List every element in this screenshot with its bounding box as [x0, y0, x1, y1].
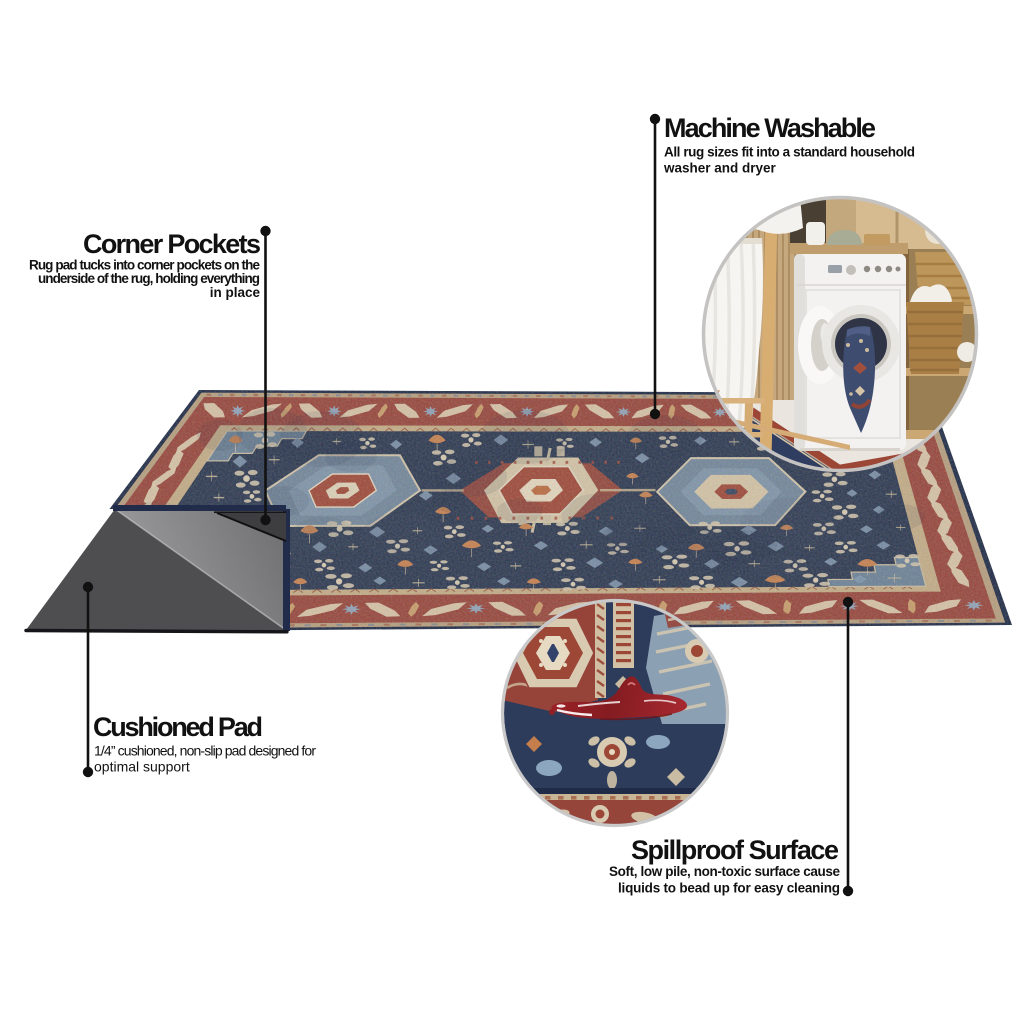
svg-text:optimal support: optimal support: [94, 759, 190, 775]
svg-text:All rug sizes fit into a stand: All rug sizes fit into a standard househ…: [664, 145, 915, 160]
svg-text:Soft, low pile, non-toxic surf: Soft, low pile, non-toxic surface cause: [609, 864, 840, 879]
svg-text:Cushioned Pad: Cushioned Pad: [93, 712, 263, 742]
svg-text:liquids to bead up for easy cl: liquids to bead up for easy cleaning: [618, 881, 840, 896]
svg-text:1/4” cushioned, non-slip pad d: 1/4” cushioned, non-slip pad designed fo…: [94, 743, 316, 759]
svg-text:washer and dryer: washer and dryer: [663, 161, 777, 176]
svg-text:Machine Washable: Machine Washable: [664, 113, 876, 143]
svg-text:Corner Pockets: Corner Pockets: [83, 229, 261, 259]
svg-text:in place: in place: [210, 285, 261, 300]
svg-text:Spillproof Surface: Spillproof Surface: [631, 835, 839, 865]
